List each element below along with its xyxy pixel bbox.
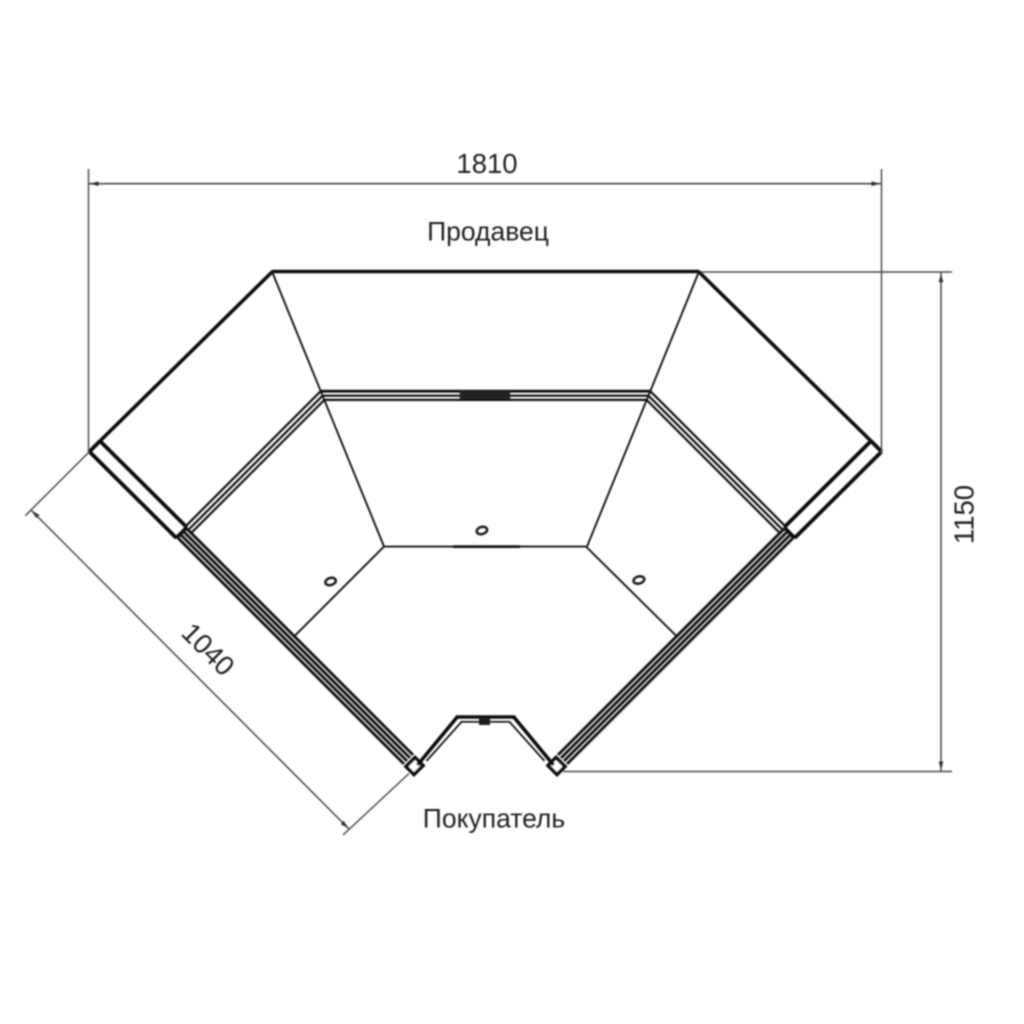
svg-text:1040: 1040 [176,617,241,682]
svg-text:Покупатель: Покупатель [423,804,565,834]
svg-text:1810: 1810 [456,148,517,179]
svg-text:Продавец: Продавец [427,217,549,247]
svg-text:1150: 1150 [949,485,980,544]
